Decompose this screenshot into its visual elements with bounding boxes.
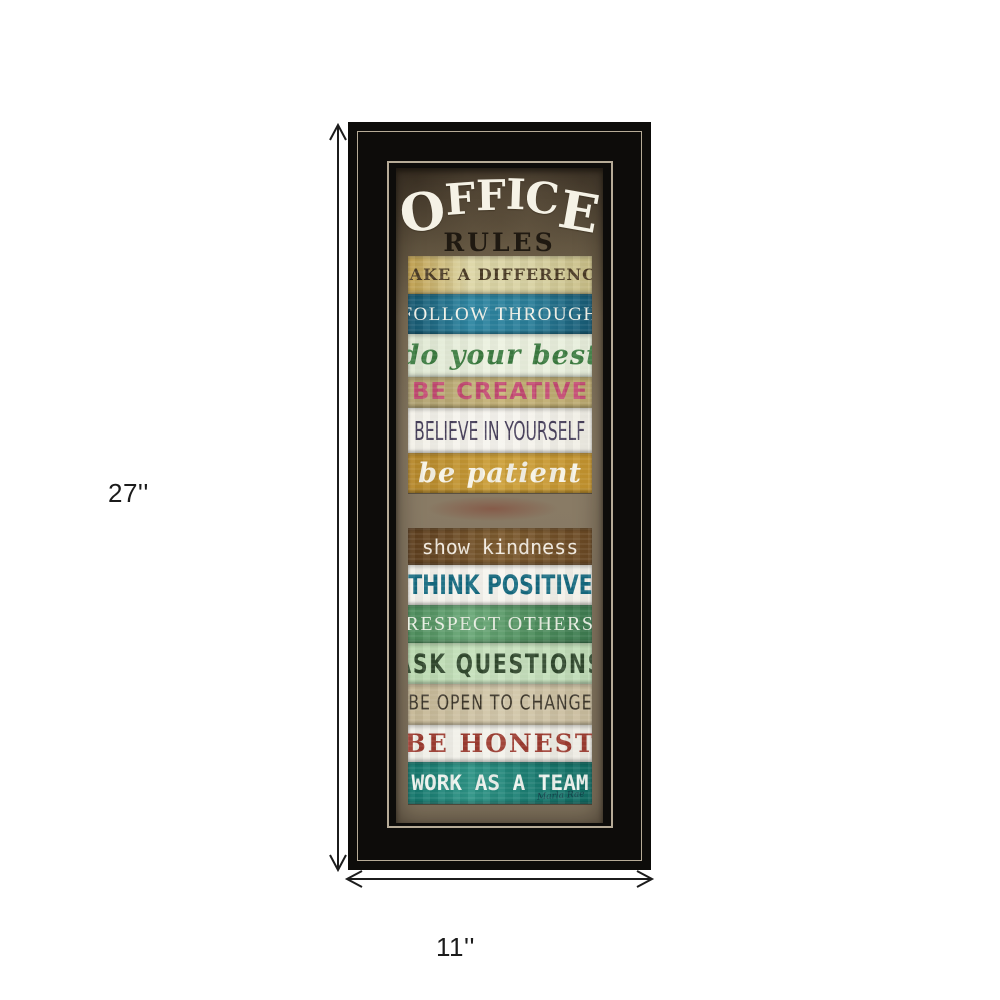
strip: ASK QUESTIONS bbox=[408, 643, 592, 684]
strips-gap bbox=[408, 493, 592, 528]
strip-text: BELIEVE IN YOURSELF bbox=[414, 418, 585, 444]
title-office-letter: C bbox=[523, 176, 561, 222]
strip: show kindness bbox=[408, 528, 592, 565]
strip: MAKE A DIFFERENCE bbox=[408, 256, 592, 294]
strip: RESPECT OTHERS bbox=[408, 605, 592, 643]
artist-signature: Marla Rae bbox=[537, 789, 585, 802]
strip-text: be patient bbox=[418, 460, 582, 487]
strip: BE HONEST bbox=[408, 725, 592, 762]
product-image-canvas: 27'' 11'' OFFICE RULES MAKE A DIFFERENCE… bbox=[0, 0, 1000, 1000]
strip: be patient bbox=[408, 453, 592, 493]
strip-text: FOLLOW THROUGH bbox=[408, 305, 592, 324]
strip: BE OPEN TO CHANGE bbox=[408, 684, 592, 725]
strips-list: MAKE A DIFFERENCEFOLLOW THROUGHdo your b… bbox=[408, 256, 592, 804]
strip: BELIEVE IN YOURSELF bbox=[408, 408, 592, 453]
picture-frame: OFFICE RULES MAKE A DIFFERENCEFOLLOW THR… bbox=[348, 122, 651, 870]
strip-text: THINK POSITIVE bbox=[408, 572, 592, 599]
strip-text: show kindness bbox=[422, 537, 579, 557]
strip-text: RESPECT OTHERS bbox=[408, 614, 592, 634]
height-dimension-label: 27'' bbox=[108, 478, 149, 509]
strip-text: BE CREATIVE bbox=[412, 381, 588, 404]
title-office-letter: F bbox=[444, 177, 477, 222]
strip-text: MAKE A DIFFERENCE bbox=[408, 267, 592, 283]
title-office-letter: F bbox=[475, 175, 506, 218]
strip: THINK POSITIVE bbox=[408, 565, 592, 605]
artwork-title: OFFICE RULES bbox=[396, 174, 603, 258]
title-office-letter: I bbox=[505, 174, 526, 217]
strip-text: do your best bbox=[408, 342, 592, 369]
artwork-print: OFFICE RULES MAKE A DIFFERENCEFOLLOW THR… bbox=[396, 168, 603, 823]
title-office: OFFICE bbox=[396, 174, 603, 232]
strip: WORK AS A TEAMMarla Rae bbox=[408, 762, 592, 804]
strip-text: BE OPEN TO CHANGE bbox=[408, 694, 592, 714]
strip-text: BE HONEST bbox=[408, 731, 592, 756]
title-office-letter: O bbox=[397, 184, 449, 242]
strip: FOLLOW THROUGH bbox=[408, 294, 592, 334]
strip-text: ASK QUESTIONS bbox=[408, 650, 592, 676]
strip: do your best bbox=[408, 334, 592, 377]
strip: BE CREATIVE bbox=[408, 377, 592, 408]
width-dimension-label: 11'' bbox=[436, 932, 475, 963]
